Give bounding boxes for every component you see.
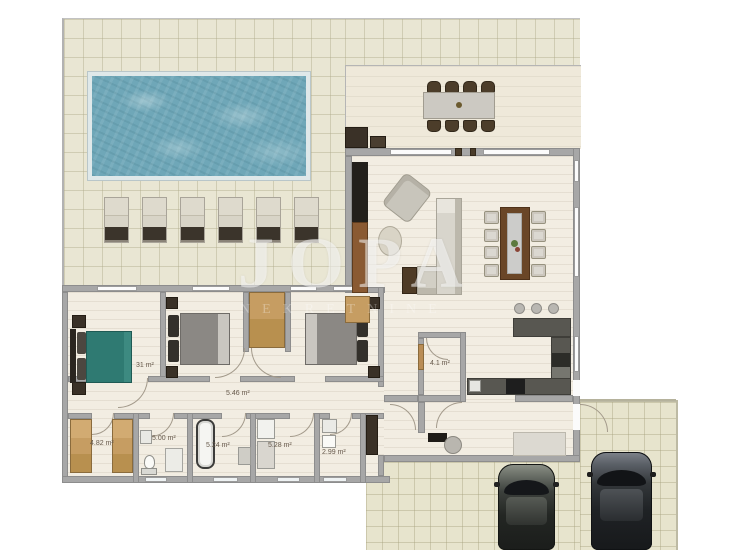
car-roof bbox=[600, 489, 643, 521]
bed-headboard bbox=[70, 329, 76, 383]
dining-chair bbox=[484, 229, 499, 242]
sun-lounger bbox=[180, 197, 205, 243]
laundry-cabinet bbox=[322, 435, 336, 448]
wall bbox=[418, 402, 425, 433]
floor-plan: 4.1 m² 31 m² 5.46 m² 4.82 m² 5.00 m² 5.2… bbox=[0, 0, 740, 550]
nightstand bbox=[166, 297, 178, 309]
car-mirror bbox=[553, 482, 559, 487]
bed-pillow bbox=[168, 315, 179, 337]
wall bbox=[174, 413, 222, 419]
dining-chair bbox=[531, 211, 546, 224]
watermark-text: JOPA bbox=[238, 222, 477, 305]
washing-machine bbox=[322, 419, 337, 433]
kitchen-island bbox=[513, 318, 571, 337]
wall bbox=[187, 413, 193, 483]
window bbox=[323, 477, 347, 482]
window bbox=[145, 477, 167, 482]
dining-chair bbox=[531, 264, 546, 277]
terrace-chair bbox=[481, 120, 495, 132]
tv-wall-unit bbox=[352, 162, 368, 222]
bed-teal bbox=[86, 331, 132, 383]
hallway-area-label: 5.46 m² bbox=[226, 390, 250, 398]
nightstand bbox=[72, 315, 86, 328]
wall bbox=[133, 413, 139, 483]
bar-stool bbox=[548, 303, 559, 314]
wall-post bbox=[455, 148, 462, 156]
kitchen-counter-right bbox=[551, 337, 571, 381]
dining-chair bbox=[531, 229, 546, 242]
terrace-chair bbox=[427, 120, 441, 132]
wall bbox=[314, 413, 320, 483]
wall bbox=[460, 332, 466, 402]
window bbox=[390, 149, 452, 155]
wall-post bbox=[470, 148, 476, 156]
wall bbox=[515, 395, 573, 402]
entry-pouf bbox=[444, 436, 462, 454]
window bbox=[213, 477, 238, 482]
wall bbox=[148, 376, 210, 382]
window bbox=[97, 286, 137, 291]
dining-chair bbox=[484, 264, 499, 277]
pantry-door bbox=[418, 344, 424, 370]
window bbox=[574, 336, 579, 372]
car-mirror bbox=[494, 482, 500, 487]
nightstand bbox=[72, 382, 86, 395]
nightstand bbox=[166, 366, 178, 378]
pantry-area-label: 4.1 m² bbox=[430, 360, 450, 368]
bbq-counter bbox=[345, 127, 368, 148]
wall bbox=[62, 292, 68, 483]
washer-column bbox=[257, 419, 275, 439]
closet-area-label: 4.82 m² bbox=[90, 440, 114, 448]
car bbox=[591, 452, 652, 550]
terrace-table-centerpiece bbox=[456, 102, 462, 108]
bed-gray bbox=[180, 313, 230, 365]
toilet-bowl bbox=[144, 455, 155, 469]
toilet-tank bbox=[141, 468, 157, 475]
bathroom2-area-label: 5.28 m² bbox=[268, 442, 292, 450]
wall-opening bbox=[573, 380, 580, 396]
bed-pillow bbox=[77, 358, 86, 380]
wall bbox=[240, 376, 295, 382]
dining-chair bbox=[484, 211, 499, 224]
bathroom-sink bbox=[140, 430, 152, 444]
window bbox=[574, 207, 579, 277]
bed-pillow bbox=[168, 340, 179, 362]
cooktop bbox=[506, 379, 525, 394]
bathroom-sink bbox=[238, 447, 251, 465]
window bbox=[483, 149, 550, 155]
hall-wardrobe bbox=[366, 415, 378, 455]
wall bbox=[418, 395, 462, 402]
bar-stool bbox=[531, 303, 542, 314]
terrace-chair bbox=[463, 120, 477, 132]
window bbox=[574, 160, 579, 182]
wall bbox=[384, 395, 418, 402]
top-terrace-strip bbox=[345, 18, 580, 66]
wc-area-label: 5.00 m² bbox=[152, 435, 176, 443]
dining-chair bbox=[484, 246, 499, 259]
bedroom1-area-label: 31 m² bbox=[136, 362, 154, 370]
dining-chair bbox=[531, 246, 546, 259]
terrace-chair bbox=[445, 120, 459, 132]
watermark-subtext: NEKRETNINE bbox=[240, 302, 449, 318]
bbq-side-counter bbox=[370, 136, 386, 148]
kitchen-sink bbox=[469, 380, 481, 392]
car-mirror bbox=[587, 472, 593, 477]
front-door-opening bbox=[573, 404, 580, 430]
wardrobe bbox=[112, 419, 133, 473]
car-windshield bbox=[504, 480, 549, 495]
bed-pillow bbox=[77, 332, 86, 354]
window bbox=[192, 286, 230, 291]
car-roof bbox=[506, 497, 547, 525]
car-mirror bbox=[650, 472, 656, 477]
car bbox=[498, 464, 555, 550]
shower bbox=[165, 448, 183, 472]
bathroom1-area-label: 5.24 m² bbox=[206, 442, 230, 450]
swimming-pool bbox=[88, 72, 310, 180]
entry-rug bbox=[513, 432, 566, 456]
wall bbox=[384, 455, 580, 462]
bed-pillow bbox=[357, 340, 368, 362]
sun-lounger bbox=[142, 197, 167, 243]
laundry-area-label: 2.99 m² bbox=[322, 449, 346, 457]
car-windshield bbox=[597, 470, 646, 486]
wardrobe bbox=[70, 419, 92, 473]
nightstand bbox=[368, 366, 380, 378]
bar-stool bbox=[514, 303, 525, 314]
sun-lounger bbox=[104, 197, 129, 243]
driveway-curb bbox=[580, 399, 676, 401]
window bbox=[277, 477, 300, 482]
table-centerpiece bbox=[511, 240, 518, 247]
